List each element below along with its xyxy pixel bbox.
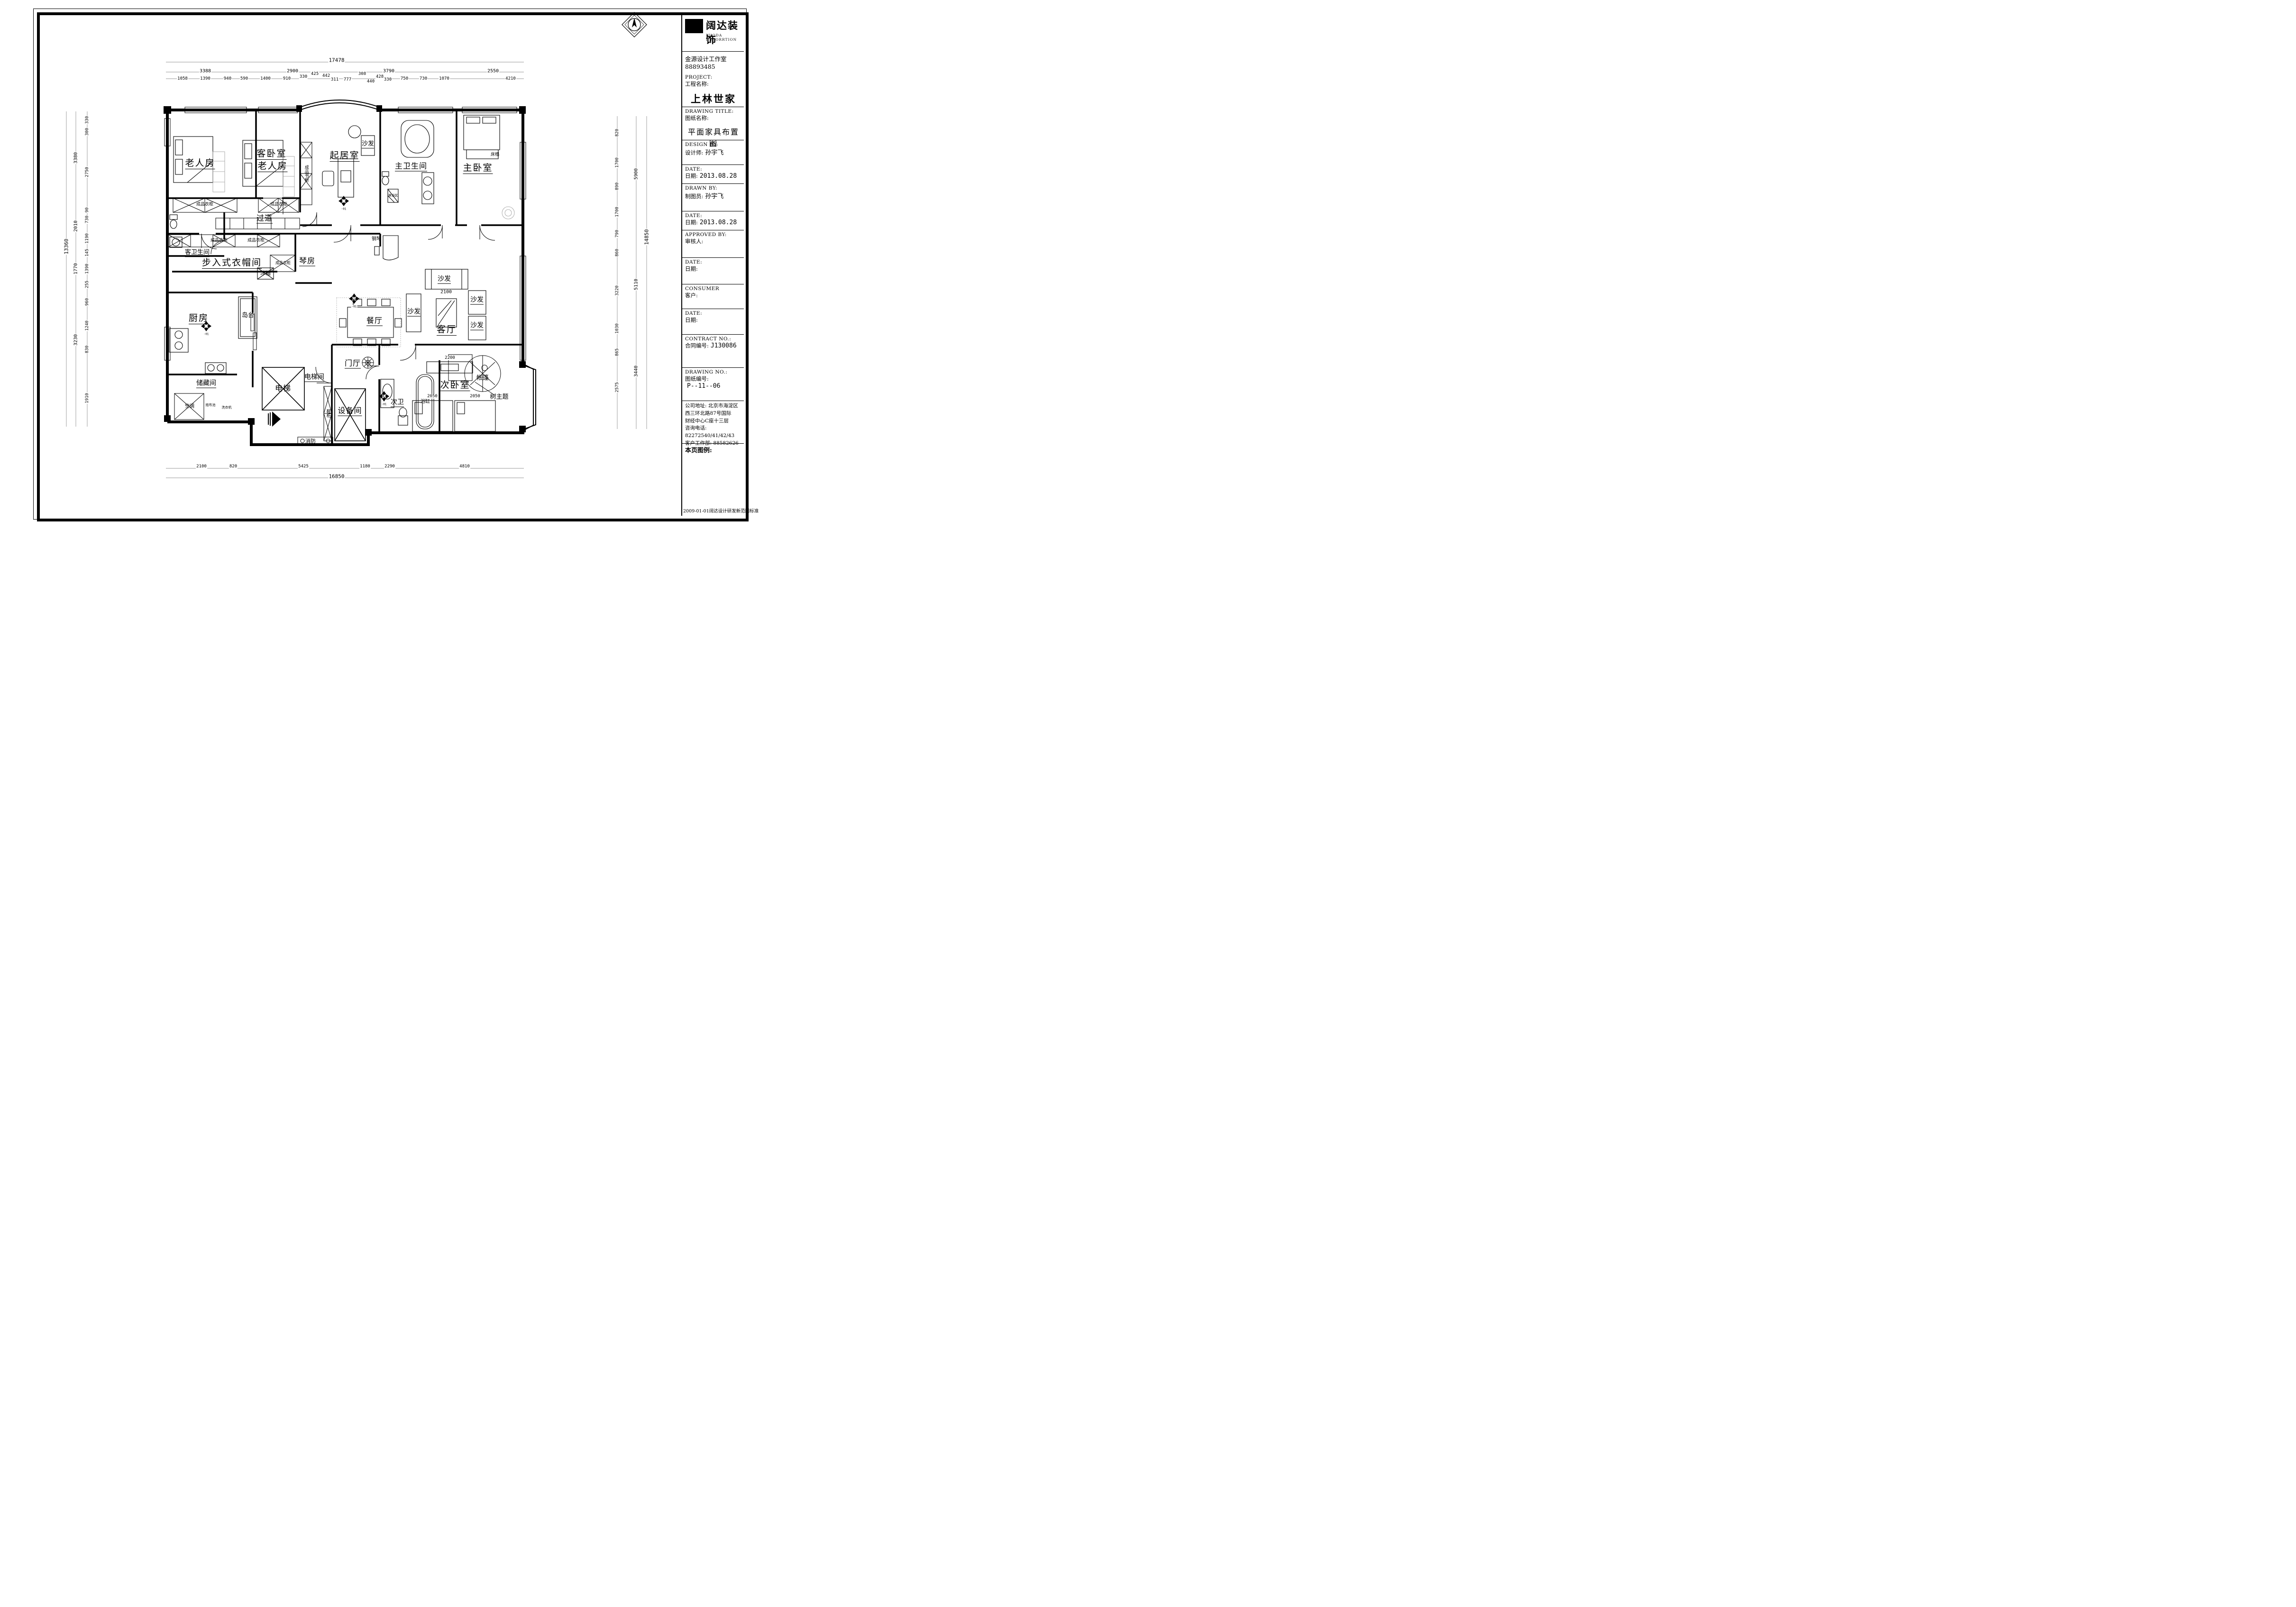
field-address: 公司地址: 北京市海淀区西三环北路87号国际 财经中心C座十三层 咨询电话: 8… bbox=[682, 401, 744, 444]
dim-left-l3-0: 330 bbox=[85, 116, 90, 124]
label-washer: 洗衣机 bbox=[222, 406, 232, 409]
field-design-by-en: DESIGN BY: bbox=[685, 142, 742, 147]
label-mop-sink: 拖布池 bbox=[206, 403, 216, 407]
legend-label: 本页图例: bbox=[685, 445, 742, 454]
field-project-en: PROJECT: bbox=[685, 74, 742, 80]
field-date3-en: DATE: bbox=[685, 259, 742, 265]
field-drawing-title-en: DRAWING TITLE: bbox=[685, 109, 742, 114]
dim-right-total: 14850 bbox=[644, 228, 650, 245]
dim-right-l3-0: 820 bbox=[615, 128, 620, 137]
dim-right-l3-1: 1700 bbox=[615, 157, 620, 168]
field-drawing-no: DRAWING NO.: 图纸编号:P--11--06 bbox=[682, 368, 744, 401]
field-drawing-no-en: DRAWING NO.: bbox=[685, 369, 742, 375]
field-approved-by-zh: 审核人: bbox=[685, 237, 742, 245]
dim-top-l3-8: 442 bbox=[322, 73, 330, 78]
field-drawn-by-zh: 制图员:孙宇飞 bbox=[685, 191, 742, 200]
label-wardrobe-4: 成品衣柜 bbox=[247, 238, 265, 243]
dim-left-l2-2: 1770 bbox=[73, 263, 79, 275]
elev-marker-text-2: -01 bbox=[203, 333, 210, 336]
label-shoe-cabinet: 鞋柜 bbox=[325, 409, 329, 418]
dim-top-total: 17478 bbox=[328, 57, 345, 64]
field-contract: CONTRACT NO.: 合同编号:J130086 bbox=[682, 335, 744, 368]
elev-marker-text-3: -01 bbox=[351, 305, 357, 309]
title-block-logo-row: 阔达装饰 KUODA DECORRTION bbox=[682, 12, 744, 52]
dim-top-l3-11: 308 bbox=[358, 72, 366, 76]
drawing-sheet: 老人房 客卧室 老人房 起居室 沙发 主卫生间 主卧室 床榻 过道 客卫生间 步… bbox=[0, 0, 765, 536]
room-label-guest-bath: 客卫生间 bbox=[185, 249, 210, 257]
field-design-by: DESIGN BY: 设计师:孙宇飞 bbox=[682, 140, 744, 165]
field-project-zh: 工程名称: bbox=[685, 80, 742, 88]
dim-top-l3-13: 428 bbox=[375, 74, 384, 79]
dim-right-l3-2: 890 bbox=[615, 182, 620, 191]
room-label-equipment: 设备间 bbox=[338, 407, 362, 416]
rugs bbox=[213, 152, 514, 347]
room-label-sofa-family: 沙发 bbox=[362, 141, 374, 148]
dim-bottom-total: 16850 bbox=[328, 474, 345, 480]
dim-top-l2-3: 2550 bbox=[487, 69, 499, 74]
field-drawn-by: DRAWN BY: 制图员:孙宇飞 bbox=[682, 184, 744, 211]
dim-left-l3-8: 255 bbox=[85, 280, 90, 289]
dim-right-l3-3: 1700 bbox=[615, 206, 620, 218]
label-fire: 消防 bbox=[305, 438, 316, 444]
dim-top-l3-7: 425 bbox=[311, 72, 319, 76]
dim-bottom-2: 5425 bbox=[298, 464, 309, 469]
dim-top-l2-1: 2900 bbox=[286, 69, 299, 74]
dim-left-l3-6: 145 bbox=[85, 248, 90, 257]
dim-right-l2-2: 3440 bbox=[634, 365, 639, 377]
room-label-guest-bedroom: 客卧室 bbox=[256, 149, 286, 160]
room-label-sofa-top: 沙发 bbox=[438, 276, 451, 284]
dim-left-l2-1: 2010 bbox=[73, 220, 79, 232]
company-address-2: 财经中心C座十三层 bbox=[685, 418, 742, 425]
room-label-elevator: 电梯 bbox=[275, 385, 291, 393]
dim-left-l3-10: 1240 bbox=[85, 320, 90, 331]
dim-sofa-width: 2100 bbox=[440, 290, 452, 295]
label-tree-theme: 树主题 bbox=[490, 394, 508, 401]
field-date2-zh: 日期:2013.08.28 bbox=[685, 219, 742, 226]
dim-right-l3-6: 3220 bbox=[615, 285, 620, 296]
field-date2-en: DATE: bbox=[685, 213, 742, 219]
room-label-sofa-left: 沙发 bbox=[407, 309, 421, 317]
label-wardrobe-1: 成品衣柜 bbox=[196, 202, 213, 207]
dim-left-total: 13360 bbox=[64, 238, 70, 255]
field-date4-en: DATE: bbox=[685, 310, 742, 316]
floor-plan-canvas bbox=[0, 0, 765, 536]
studio-name: 金源设计工作室 bbox=[685, 54, 727, 63]
dim-left-l3-11: 830 bbox=[85, 345, 90, 354]
field-date1-zh: 日期:2013.08.28 bbox=[685, 172, 742, 180]
field-consumer: CONSUMER 客户: bbox=[682, 284, 744, 309]
kitchen-fixtures bbox=[169, 268, 274, 374]
field-date3: DATE: 日期: bbox=[682, 258, 744, 284]
studio-info: 金源设计工作室 88893485 bbox=[685, 54, 727, 70]
field-design-by-zh: 设计师:孙宇飞 bbox=[685, 147, 742, 156]
dim-left-l3-7: 1390 bbox=[85, 263, 90, 274]
field-date4-zh: 日期: bbox=[685, 316, 742, 324]
elevation-markers bbox=[201, 196, 389, 402]
dim-tv-width: 2200 bbox=[444, 356, 456, 360]
dim-top-l3-3: 590 bbox=[240, 76, 248, 81]
room-label-master-bath: 主卫生间 bbox=[395, 163, 427, 172]
dim-left-l3-9: 960 bbox=[85, 298, 90, 306]
dim-bottom-0: 2100 bbox=[196, 464, 207, 469]
dim-bed-a: 2050 bbox=[427, 394, 438, 399]
company-address: 公司地址: 北京市海淀区西三环北路87号国际 bbox=[685, 402, 742, 418]
field-drawing-no-zh: 图纸编号:P--11--06 bbox=[685, 375, 742, 390]
label-bed-bench: 床榻 bbox=[491, 153, 499, 157]
label-fridge: 冰箱 bbox=[260, 271, 271, 276]
room-label-guest-bedroom-sub: 老人房 bbox=[257, 162, 287, 172]
dim-top-l3-0: 1058 bbox=[177, 76, 188, 81]
title-block-footer-note: 2009-01-01阔达设计研发新范图标准 bbox=[683, 507, 743, 514]
field-drawn-by-value: 孙宇飞 bbox=[705, 191, 723, 200]
dim-top-l2-0: 3388 bbox=[199, 69, 211, 74]
room-label-elevator-hall: 电梯间 bbox=[304, 374, 324, 382]
room-label-second-bath: 次卫 bbox=[391, 399, 404, 407]
field-legend: 本页图例: bbox=[682, 444, 744, 516]
field-date4: DATE: 日期: bbox=[682, 309, 744, 335]
dim-left-l3-3: 90 bbox=[85, 207, 90, 213]
label-bathtub: 浴缸 bbox=[421, 400, 430, 405]
dim-top-l3-18: 4210 bbox=[505, 76, 516, 81]
dim-right-l2-1: 5110 bbox=[634, 278, 639, 291]
room-label-second-bedroom: 次卧室 bbox=[440, 381, 470, 391]
dim-right-l3-7: 1030 bbox=[615, 323, 620, 334]
dim-top-l3-14: 330 bbox=[384, 77, 392, 82]
dim-left-l2-0: 3380 bbox=[73, 152, 79, 164]
label-wardrobe-5: 成品衣柜 bbox=[275, 261, 291, 265]
company-name-en: KUODA DECORRTION bbox=[706, 33, 744, 42]
dim-right-l2-0: 5900 bbox=[634, 168, 639, 180]
label-bookcase: 成品书柜 bbox=[303, 165, 308, 182]
company-logo-icon bbox=[685, 19, 703, 33]
label-wardrobe-3: 成品衣柜 bbox=[210, 238, 228, 243]
entry-arrow-icon bbox=[268, 411, 281, 427]
field-contract-zh: 合同编号:J130086 bbox=[685, 342, 742, 349]
dim-left-l3-12: 1910 bbox=[85, 393, 90, 404]
dim-top-l3-16: 730 bbox=[419, 76, 428, 81]
room-label-closet: 步入式衣帽间 bbox=[202, 258, 262, 269]
dim-bottom-1: 820 bbox=[229, 464, 238, 469]
field-drawing-no-value: P--11--06 bbox=[687, 383, 720, 390]
dim-top-l3-5: 910 bbox=[283, 76, 291, 81]
dim-left-l3-5: 1190 bbox=[85, 233, 90, 244]
field-design-by-value: 孙宇飞 bbox=[705, 147, 723, 156]
wardrobe-cabinets bbox=[168, 142, 332, 441]
label-ac: 空调 bbox=[185, 404, 194, 410]
field-drawing-title-zh: 图纸名称: bbox=[685, 114, 742, 122]
field-project: PROJECT: 工程名称: 上林世家 bbox=[682, 73, 744, 107]
field-date2-value: 2013.08.28 bbox=[700, 219, 737, 226]
field-date1-en: DATE: bbox=[685, 166, 742, 172]
dim-top-l3-15: 750 bbox=[400, 76, 409, 81]
room-label-elderly1: 老人房 bbox=[185, 159, 215, 169]
dim-left-l3-1: 300 bbox=[85, 128, 90, 136]
dim-left-l3-4: 730 bbox=[85, 215, 90, 224]
field-date1-value: 2013.08.28 bbox=[700, 173, 737, 180]
north-compass-icon bbox=[622, 12, 647, 37]
dim-top-l3-10: 777 bbox=[343, 77, 352, 82]
dim-bottom-3: 1180 bbox=[359, 464, 371, 469]
field-drawn-by-en: DRAWN BY: bbox=[685, 185, 742, 191]
label-wardrobe-2: 成品衣柜 bbox=[270, 202, 287, 207]
title-block: 阔达装饰 KUODA DECORRTION 金源设计工作室 88893485 P… bbox=[681, 12, 744, 516]
dim-left-l3-2: 2750 bbox=[85, 166, 90, 178]
dim-right-l3-9: 2575 bbox=[615, 382, 620, 393]
field-date1: DATE: 日期:2013.08.28 bbox=[682, 165, 744, 184]
room-label-foyer: 门厅 bbox=[345, 360, 361, 369]
room-label-master-bedroom: 主卧室 bbox=[463, 164, 493, 174]
field-consumer-zh: 客户: bbox=[685, 292, 742, 299]
label-shower: 淋浴区 bbox=[388, 194, 398, 197]
room-label-sofa-right2: 沙发 bbox=[470, 322, 484, 330]
dim-top-l3-12: 440 bbox=[366, 79, 375, 84]
room-label-sofa-right1: 沙发 bbox=[470, 297, 484, 305]
dim-right-l3-8: 865 bbox=[615, 348, 620, 356]
field-approved-by-en: APPROVED BY: bbox=[685, 232, 742, 237]
dim-top-l3-6: 330 bbox=[299, 74, 308, 79]
room-label-storage: 储藏间 bbox=[196, 380, 216, 388]
room-label-family-room: 起居室 bbox=[329, 151, 359, 162]
dim-top-l2-2: 3790 bbox=[383, 69, 395, 74]
label-tent: 帐篷 bbox=[476, 375, 489, 382]
dim-right-l3-4: 790 bbox=[615, 229, 620, 238]
field-contract-en: CONTRACT NO.: bbox=[685, 336, 742, 342]
dim-bottom-5: 4810 bbox=[459, 464, 470, 469]
field-project-value: 上林世家 bbox=[685, 91, 742, 106]
elev-marker-text-4: -01 bbox=[381, 403, 387, 406]
field-approved-by: APPROVED BY: 审核人: bbox=[682, 230, 744, 258]
dim-left-l2-3: 3230 bbox=[73, 334, 79, 346]
dim-top-l3-9: 311 bbox=[330, 77, 339, 82]
dim-bottom-4: 2290 bbox=[384, 464, 395, 469]
foyer-medallion bbox=[362, 357, 374, 368]
field-contract-value: J130086 bbox=[711, 342, 737, 349]
label-island: 岛台 bbox=[242, 312, 254, 319]
studio-phone: 88893485 bbox=[685, 63, 727, 70]
company-phone: 咨询电话: 82272540/41/42/43 bbox=[685, 425, 742, 440]
company-name: 阔达装饰 bbox=[706, 18, 744, 46]
dim-top-l3-4: 1400 bbox=[260, 76, 271, 81]
label-piano: 钢琴 bbox=[372, 237, 381, 242]
room-label-kitchen: 厨房 bbox=[189, 314, 209, 324]
bay-windows bbox=[300, 100, 536, 429]
field-drawing-title: DRAWING TITLE: 图纸名称: 平面家具布置图 bbox=[682, 107, 744, 140]
field-date3-zh: 日期: bbox=[685, 265, 742, 273]
room-label-corridor: 过道 bbox=[256, 215, 273, 224]
room-label-dining: 餐厅 bbox=[366, 317, 383, 326]
dim-top-l3-17: 1070 bbox=[439, 76, 450, 81]
dim-top-l3-2: 940 bbox=[223, 76, 232, 81]
room-label-piano-room: 琴房 bbox=[299, 257, 315, 266]
dim-top-l3-1: 1390 bbox=[200, 76, 211, 81]
field-consumer-en: CONSUMER bbox=[685, 286, 742, 292]
dim-right-l3-5: 860 bbox=[615, 248, 620, 257]
room-label-living: 客厅 bbox=[437, 325, 457, 336]
elev-marker-text-1: -01 bbox=[341, 208, 347, 211]
dim-bed-b: 2050 bbox=[469, 394, 481, 399]
field-date2: DATE: 日期:2013.08.28 bbox=[682, 211, 744, 230]
